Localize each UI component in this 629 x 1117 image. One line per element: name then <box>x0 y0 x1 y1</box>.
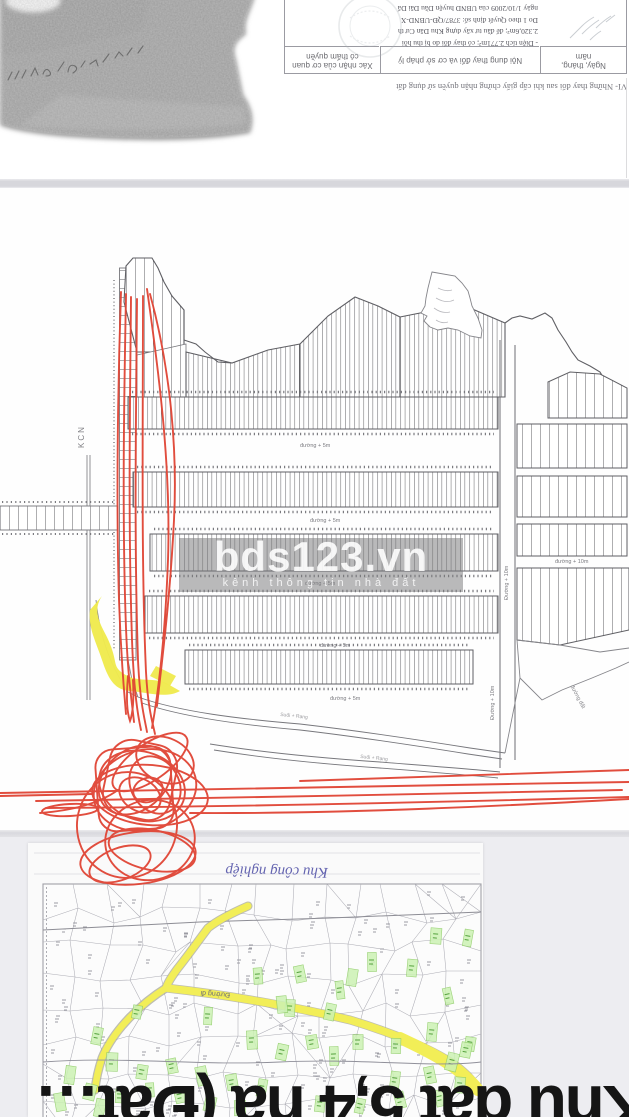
svg-text:đường đất: đường đất <box>569 684 587 710</box>
svg-text:Đường + 10m: Đường + 10m <box>490 685 496 720</box>
svg-text:đường + 5m: đường + 5m <box>310 518 341 524</box>
svg-text:KCN: KCN <box>77 425 86 448</box>
svg-text:Suối + Rạng: Suối + Rạng <box>280 712 308 721</box>
svg-text:đường + 10m: đường + 10m <box>555 559 589 565</box>
svg-text:đường + 5m: đường + 5m <box>330 696 361 702</box>
svg-text:đường + 5m: đường + 5m <box>300 443 331 449</box>
svg-text:đường + 5m: đường + 5m <box>320 643 351 649</box>
svg-text:Đường + 10m: Đường + 10m <box>504 565 510 600</box>
